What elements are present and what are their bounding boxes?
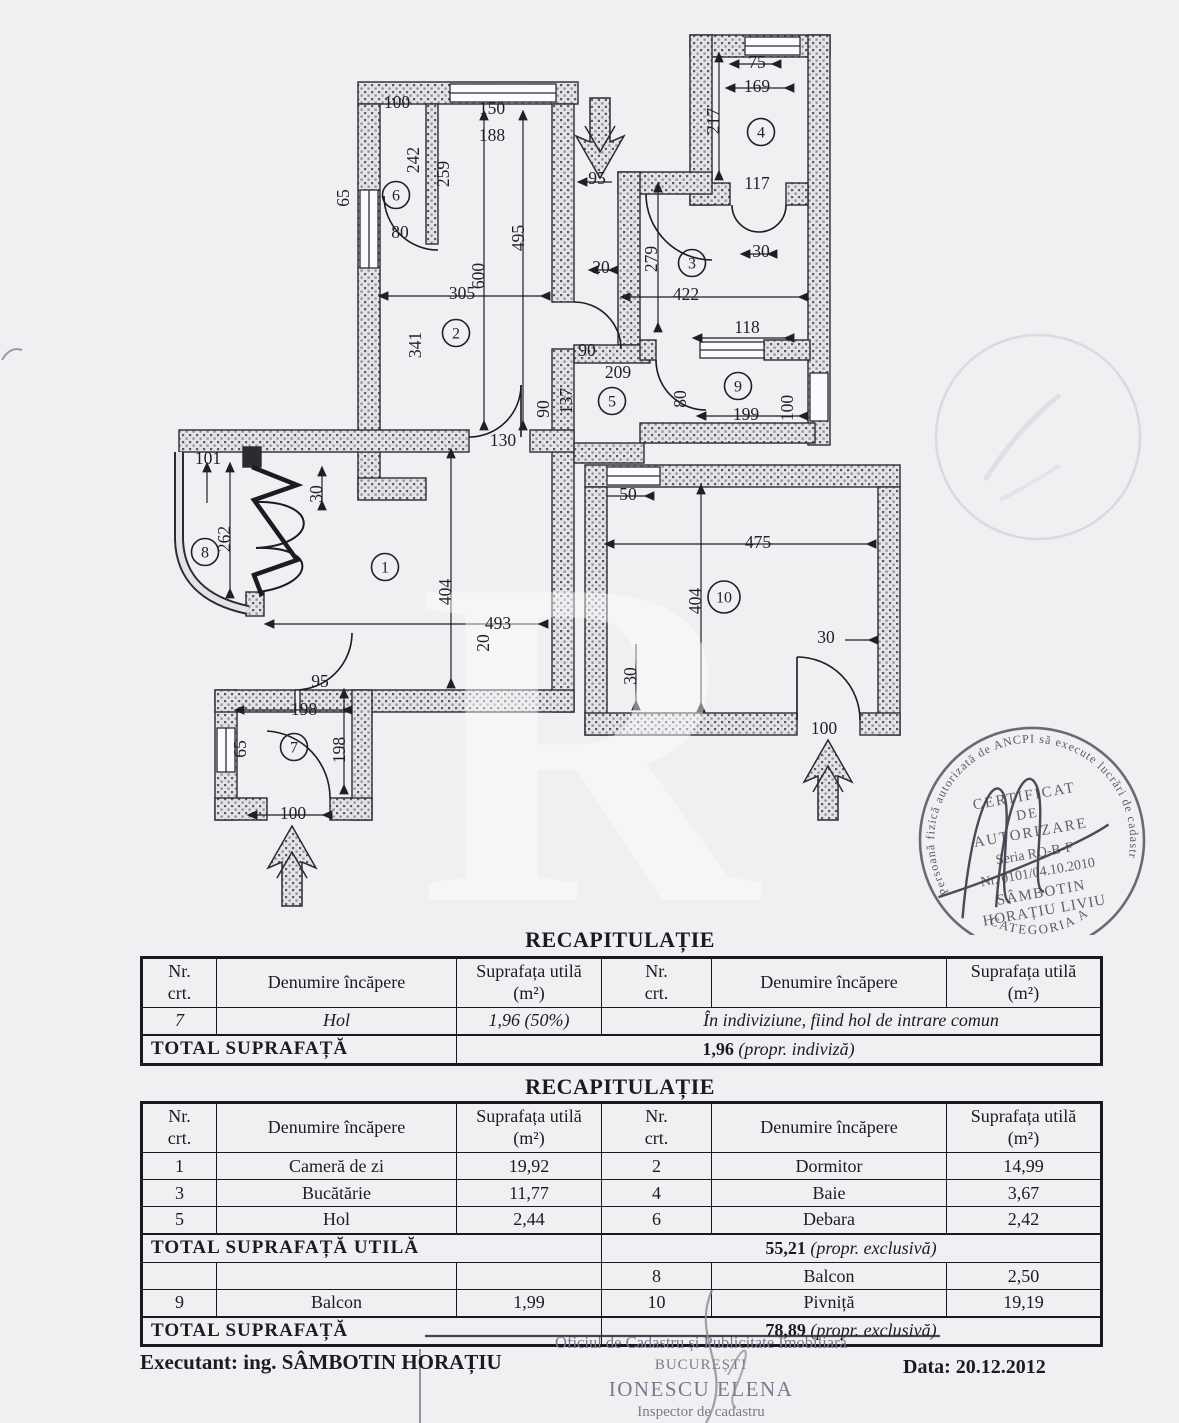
table-row: 7 Hol 1,96 (50%) În indiviziune, fiind h…: [142, 1008, 1102, 1035]
col-header-denumire: Denumire încăpere: [217, 958, 457, 1008]
office-stamp-line: BUCUREȘTI: [420, 1357, 982, 1374]
executant-line: Executant: ing. SÂMBOTIN HORAȚIU: [140, 1350, 502, 1375]
cell-nr: 9: [142, 1290, 217, 1317]
dimension-label: 75: [748, 52, 766, 72]
cell-suprafata: 19,19: [947, 1290, 1102, 1317]
cell-denumire: Bucătărie: [217, 1180, 457, 1207]
dimension-label: 150: [479, 98, 506, 118]
cell-suprafata: 1,99: [457, 1290, 602, 1317]
cell-suprafata: 2,44: [457, 1207, 602, 1234]
dimension-label: 217: [703, 108, 723, 135]
dimension-label: 117: [744, 173, 770, 193]
dimension-label: 100: [777, 395, 797, 422]
cell-suprafata: 3,67: [947, 1180, 1102, 1207]
stamp-line: DE: [1015, 806, 1040, 825]
col-header-nr: Nr. crt.: [602, 1103, 712, 1153]
cell-nr: [142, 1263, 217, 1290]
cell-denumire: Hol: [217, 1008, 457, 1035]
ghost-stamp: [936, 335, 1140, 539]
cell-suprafata: [457, 1263, 602, 1290]
office-stamp-role: Inspector de cadastru: [420, 1404, 982, 1421]
total-note: (propr. exclusivă): [810, 1238, 936, 1258]
dimension-label: 65: [230, 740, 250, 758]
floor-plan: R 10024225915018865804956002030534195279…: [0, 0, 1179, 935]
dimension-label: 95: [311, 671, 329, 691]
room-number: 3: [679, 250, 706, 277]
cell-denumire: Hol: [217, 1207, 457, 1234]
cell-nr: 5: [142, 1207, 217, 1234]
dimension-label: 404: [435, 579, 455, 606]
total-label: TOTAL SUPRAFAȚĂ UTILĂ: [142, 1234, 602, 1263]
cell-denumire: Baie: [712, 1180, 947, 1207]
dimension-label: 305: [449, 283, 476, 303]
total-row: TOTAL SUPRAFAȚĂ 1,96 (propr. indiviză): [142, 1035, 1102, 1065]
dimension-label: 100: [384, 92, 411, 112]
recapitulatie-table-2: Nr. crt. Denumire încăpere Suprafața uti…: [140, 1101, 1103, 1347]
dimension-label: 30: [620, 667, 640, 685]
office-stamp-name: IONESCU ELENA: [420, 1378, 982, 1401]
cell-nr: 3: [142, 1180, 217, 1207]
table-row: 5 Hol 2,44 6 Debara 2,42: [142, 1207, 1102, 1234]
total-utila-row: TOTAL SUPRAFAȚĂ UTILĂ 55,21 (propr. excl…: [142, 1234, 1102, 1263]
room-number: 4: [748, 119, 775, 146]
dimension-label: 198: [329, 737, 349, 764]
col-header-nr: Nr. crt.: [142, 958, 217, 1008]
dimension-label: 118: [734, 317, 760, 337]
col-header-suprafata: Suprafața utilă (m²): [947, 1103, 1102, 1153]
svg-text:8: 8: [201, 545, 209, 562]
dimension-label: 259: [433, 161, 453, 188]
dimension-label: 30: [817, 627, 835, 647]
cell-suprafata: 2,42: [947, 1207, 1102, 1234]
total-value: 1,96 (propr. indiviză): [457, 1035, 1102, 1065]
cell-nr: 4: [602, 1180, 712, 1207]
cell-denumire: Balcon: [712, 1263, 947, 1290]
cell-denumire: Debara: [712, 1207, 947, 1234]
room-number: 9: [725, 373, 752, 400]
cell-denumire: Cameră de zi: [217, 1153, 457, 1180]
room-number: 2: [443, 320, 470, 347]
cell-suprafata: 19,92: [457, 1153, 602, 1180]
dimension-label: 90: [533, 400, 553, 418]
cell-suprafata: 14,99: [947, 1153, 1102, 1180]
dimension-label: 90: [578, 340, 596, 360]
watermark: R: [418, 481, 763, 935]
svg-text:10: 10: [716, 590, 732, 607]
cell-denumire: Balcon: [217, 1290, 457, 1317]
dimension-label: 137: [556, 388, 576, 415]
svg-text:5: 5: [608, 394, 616, 411]
cell-suprafata: 11,77: [457, 1180, 602, 1207]
cell-suprafata: 1,96 (50%): [457, 1008, 602, 1035]
col-header-denumire: Denumire încăpere: [712, 958, 947, 1008]
dimension-label: 80: [670, 390, 690, 408]
cell-denumire: Pivniță: [712, 1290, 947, 1317]
date-line: Data: 20.12.2012: [903, 1356, 1046, 1379]
scan-artifact: [2, 349, 22, 360]
dimension-label: 262: [214, 526, 234, 552]
col-header-suprafata: Suprafața utilă (m²): [457, 1103, 602, 1153]
dimension-label: 65: [333, 189, 353, 207]
table-row: 9 Balcon 1,99 10 Pivniță 19,19: [142, 1290, 1102, 1317]
col-header-nr: Nr. crt.: [142, 1103, 217, 1153]
dimension-label: 279: [641, 246, 661, 273]
dimension-label: 198: [291, 699, 318, 719]
dimension-label: 50: [619, 484, 637, 504]
dimension-label: 495: [508, 225, 528, 252]
dimension-label: 100: [811, 718, 838, 738]
col-header-denumire: Denumire încăpere: [217, 1103, 457, 1153]
svg-text:7: 7: [290, 740, 298, 757]
total-label: TOTAL SUPRAFAȚĂ: [142, 1035, 457, 1065]
total-value: 55,21 (propr. exclusivă): [602, 1234, 1102, 1263]
dimension-label: 80: [391, 222, 409, 242]
total-number: 55,21: [765, 1238, 806, 1258]
scanned-cadastral-document: R 10024225915018865804956002030534195279…: [0, 0, 1179, 1423]
total-number: 1,96: [702, 1039, 734, 1059]
room-number: 5: [599, 388, 626, 415]
dimension-label: 95: [588, 168, 606, 188]
office-stamp-line: Oficiul de Cadastru și Publicitate Imobi…: [420, 1334, 982, 1352]
dimension-label: 20: [592, 257, 610, 277]
table1-title: RECAPITULAȚIE: [140, 927, 1100, 953]
dimension-label: 242: [403, 147, 423, 173]
cell-nr: 10: [602, 1290, 712, 1317]
col-header-suprafata: Suprafața utilă (m²): [457, 958, 602, 1008]
svg-text:6: 6: [392, 188, 400, 205]
cell-nr: 7: [142, 1008, 217, 1035]
cell-suprafata: 2,50: [947, 1263, 1102, 1290]
room-number: 1: [372, 554, 399, 581]
table2-title: RECAPITULAȚIE: [140, 1074, 1100, 1100]
cell-nr: 6: [602, 1207, 712, 1234]
dimension-label: 101: [195, 448, 221, 468]
svg-text:3: 3: [688, 256, 696, 273]
dimension-label: 30: [306, 485, 326, 503]
dimension-label: 493: [485, 613, 512, 633]
dimension-label: 30: [752, 241, 770, 261]
col-header-suprafata: Suprafața utilă (m²): [947, 958, 1102, 1008]
dimension-label: 341: [405, 332, 425, 358]
svg-text:1: 1: [381, 560, 389, 577]
dimension-label: 422: [673, 284, 699, 304]
cell-denumire: [217, 1263, 457, 1290]
dimension-label: 209: [605, 362, 632, 382]
dimension-label: 404: [685, 588, 705, 615]
dimension-label: 199: [733, 404, 760, 424]
dimension-label: 169: [744, 76, 771, 96]
cell-note: În indiviziune, fiind hol de intrare com…: [602, 1008, 1102, 1035]
dimension-label: 20: [473, 634, 493, 652]
dimension-label: 100: [280, 803, 307, 823]
cell-nr: 2: [602, 1153, 712, 1180]
svg-text:4: 4: [757, 125, 765, 142]
table-row: 1 Cameră de zi 19,92 2 Dormitor 14,99: [142, 1153, 1102, 1180]
table-row: 8 Balcon 2,50: [142, 1263, 1102, 1290]
cell-denumire: Dormitor: [712, 1153, 947, 1180]
dimension-label: 475: [745, 532, 772, 552]
svg-text:2: 2: [452, 326, 460, 343]
col-header-denumire: Denumire încăpere: [712, 1103, 947, 1153]
recapitulatie-table-1: Nr. crt. Denumire încăpere Suprafața uti…: [140, 956, 1103, 1066]
cell-nr: 8: [602, 1263, 712, 1290]
cell-nr: 1: [142, 1153, 217, 1180]
dimension-label: 188: [479, 125, 506, 145]
svg-text:9: 9: [734, 379, 742, 396]
dimension-label: 130: [490, 430, 517, 450]
col-header-nr: Nr. crt.: [602, 958, 712, 1008]
room-number: 6: [383, 182, 410, 209]
table-row: 3 Bucătărie 11,77 4 Baie 3,67: [142, 1180, 1102, 1207]
glazing-zigzag: [252, 467, 304, 596]
total-note: (propr. indiviză): [738, 1039, 854, 1059]
